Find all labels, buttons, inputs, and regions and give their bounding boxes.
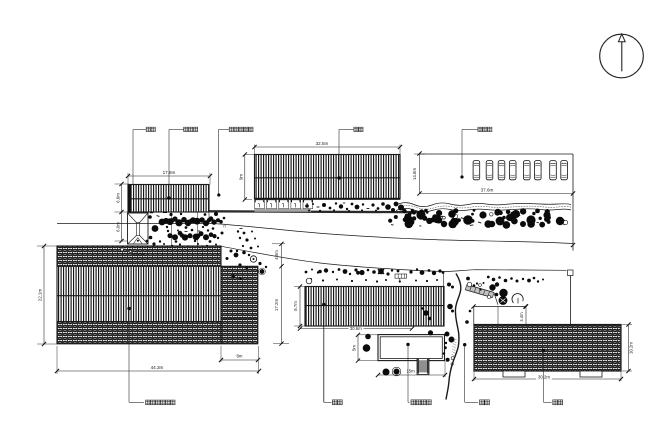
svg-text:30.2m: 30.2m: [538, 375, 550, 380]
svg-text:30.6m: 30.6m: [350, 326, 362, 331]
svg-text:17.8m: 17.8m: [163, 170, 176, 175]
svg-text:44.3m: 44.3m: [151, 365, 164, 370]
svg-text:8m: 8m: [237, 354, 243, 359]
svg-text:17.2m: 17.2m: [274, 299, 279, 312]
svg-text:5m: 5m: [351, 345, 356, 351]
svg-text:40.6m: 40.6m: [133, 251, 145, 256]
svg-text:22.1m: 22.1m: [38, 289, 43, 302]
svg-text:10.2m: 10.2m: [628, 342, 633, 354]
svg-text:32.5m: 32.5m: [316, 141, 329, 146]
svg-text:37.6m: 37.6m: [481, 188, 494, 193]
svg-text:14.8m: 14.8m: [412, 168, 417, 181]
svg-text:8.7m: 8.7m: [293, 301, 298, 311]
svg-text:4.5m: 4.5m: [274, 250, 279, 260]
svg-text:6.6m: 6.6m: [116, 193, 121, 203]
svg-text:9m: 9m: [239, 174, 244, 180]
svg-text:15m: 15m: [406, 368, 415, 373]
svg-text:4.4m: 4.4m: [519, 312, 524, 322]
